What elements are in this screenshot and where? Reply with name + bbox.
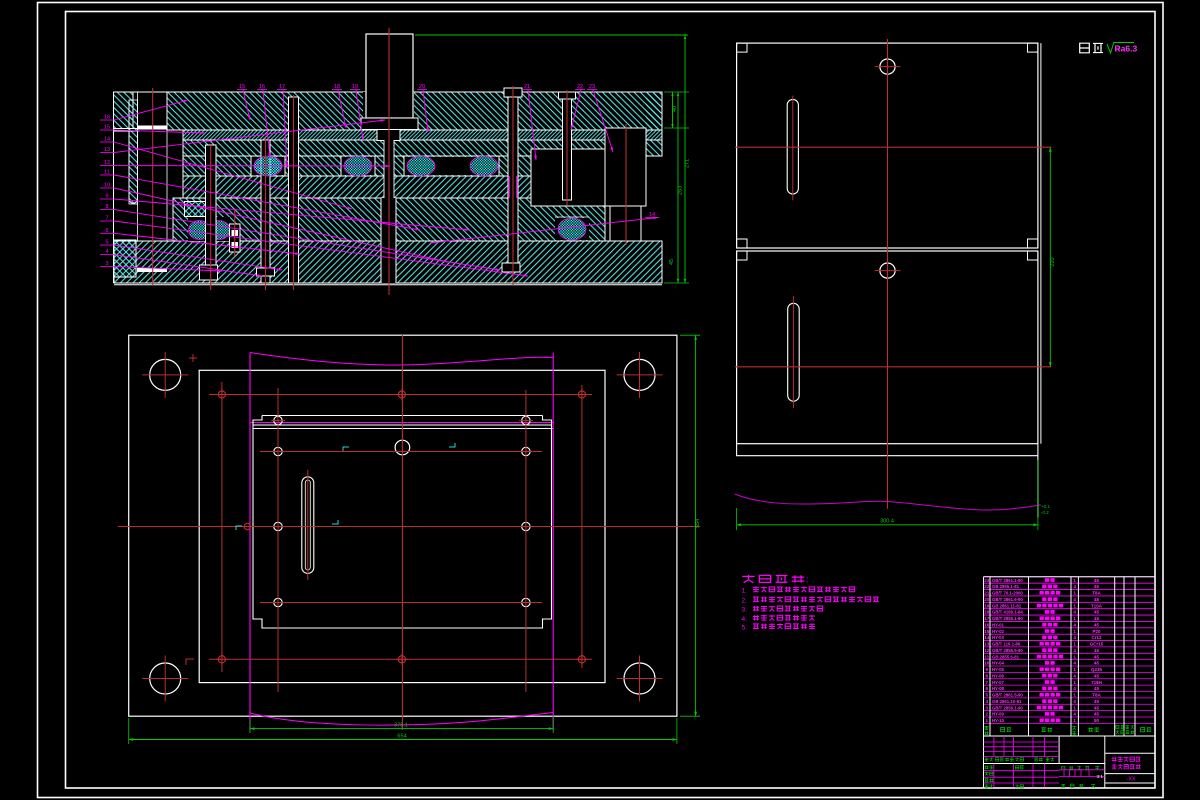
svg-text:21: 21 xyxy=(984,591,990,596)
svg-text:3:1: 3:1 xyxy=(1097,774,1104,779)
svg-text:45: 45 xyxy=(1094,686,1100,691)
svg-text:45: 45 xyxy=(1094,584,1100,589)
svg-text:4: 4 xyxy=(1073,622,1076,627)
svg-text:Cr12: Cr12 xyxy=(1092,635,1103,640)
svg-text:1: 1 xyxy=(1073,629,1076,634)
svg-text:T8A: T8A xyxy=(1092,591,1101,596)
svg-text:HY-04: HY-04 xyxy=(992,661,1005,666)
svg-text:220: 220 xyxy=(1050,257,1056,266)
svg-text:4: 4 xyxy=(1073,635,1076,640)
svg-text:45: 45 xyxy=(1094,699,1100,704)
svg-text:GB/T 4169.1-84: GB/T 4169.1-84 xyxy=(992,610,1023,615)
svg-text:HY-01: HY-01 xyxy=(992,622,1005,627)
svg-text:-0.2: -0.2 xyxy=(1041,510,1049,515)
svg-text:378.1: 378.1 xyxy=(394,723,408,729)
svg-text:45: 45 xyxy=(1094,622,1100,627)
svg-text:45: 45 xyxy=(1094,610,1100,615)
svg-text:654: 654 xyxy=(397,734,406,740)
svg-text:718H: 718H xyxy=(1091,680,1102,685)
svg-text:1: 1 xyxy=(1073,578,1076,583)
svg-text:40: 40 xyxy=(672,106,678,112)
svg-text:HY-05: HY-05 xyxy=(992,667,1005,672)
svg-text:HY-10: HY-10 xyxy=(992,718,1005,723)
svg-text:45: 45 xyxy=(1094,654,1100,659)
svg-text:19: 19 xyxy=(984,603,990,608)
svg-text:7: 7 xyxy=(985,680,988,685)
svg-text:4: 4 xyxy=(1073,648,1076,653)
svg-text:5.: 5. xyxy=(742,624,748,631)
svg-text:17: 17 xyxy=(984,616,990,621)
svg-text:45: 45 xyxy=(1094,597,1100,602)
svg-text:4: 4 xyxy=(1073,699,1076,704)
svg-text:GB/T 2855.1-90: GB/T 2855.1-90 xyxy=(992,616,1023,621)
svg-text:GCr15: GCr15 xyxy=(1090,642,1104,647)
svg-text:4: 4 xyxy=(1073,597,1076,602)
svg-text:-XX: -XX xyxy=(1126,776,1136,782)
svg-text:1: 1 xyxy=(1073,680,1076,685)
svg-text:271: 271 xyxy=(685,159,691,168)
svg-text:HY-02: HY-02 xyxy=(992,629,1005,634)
svg-text:T8A: T8A xyxy=(1092,693,1101,698)
svg-text:6: 6 xyxy=(985,686,988,691)
svg-text:10: 10 xyxy=(984,661,990,666)
svg-text:253: 253 xyxy=(678,186,684,195)
svg-text:HY-09: HY-09 xyxy=(992,712,1005,717)
svg-text:Q235: Q235 xyxy=(1091,667,1103,672)
svg-text:45: 45 xyxy=(1094,648,1100,653)
svg-text:HY-08: HY-08 xyxy=(992,686,1005,691)
svg-text:Ra6.3: Ra6.3 xyxy=(1115,44,1138,54)
svg-text:554: 554 xyxy=(695,519,701,528)
svg-text:4: 4 xyxy=(1073,584,1076,589)
svg-text:GB/T 2856.1-90: GB/T 2856.1-90 xyxy=(992,705,1023,710)
svg-text:300.4: 300.4 xyxy=(880,519,894,525)
svg-text:GB 2855.6-81: GB 2855.6-81 xyxy=(992,654,1020,659)
svg-text:GB/T 70.1-2000: GB/T 70.1-2000 xyxy=(992,591,1023,596)
svg-text:GB 2861.11-81: GB 2861.11-81 xyxy=(992,603,1022,608)
svg-text:4: 4 xyxy=(985,699,988,704)
svg-text:3: 3 xyxy=(985,705,988,710)
svg-text:HY-03: HY-03 xyxy=(992,635,1005,640)
svg-text:15: 15 xyxy=(984,629,990,634)
svg-text:4: 4 xyxy=(1073,686,1076,691)
svg-text:T10A: T10A xyxy=(1091,603,1103,608)
svg-text:50: 50 xyxy=(1094,718,1100,723)
svg-text:5: 5 xyxy=(985,693,988,698)
svg-text:GB/T 119.1-86: GB/T 119.1-86 xyxy=(992,642,1021,647)
svg-text:1.: 1. xyxy=(742,588,748,595)
svg-text:45: 45 xyxy=(1094,712,1100,717)
svg-text:1: 1 xyxy=(1073,667,1076,672)
svg-text:20: 20 xyxy=(984,597,990,602)
svg-text:45: 45 xyxy=(1094,705,1100,710)
svg-text:23: 23 xyxy=(984,578,990,583)
svg-text:11: 11 xyxy=(984,654,989,659)
svg-text:45: 45 xyxy=(1094,661,1100,666)
svg-text:18: 18 xyxy=(984,610,990,615)
svg-text:2: 2 xyxy=(985,712,988,717)
svg-text:45: 45 xyxy=(1094,673,1100,678)
svg-text:13: 13 xyxy=(984,642,990,647)
svg-text:2.: 2. xyxy=(742,598,748,605)
svg-text:GB 2865.1-81: GB 2865.1-81 xyxy=(992,584,1020,589)
svg-text:1: 1 xyxy=(1073,616,1076,621)
svg-text:P20: P20 xyxy=(1093,629,1102,634)
svg-text:14: 14 xyxy=(984,635,990,640)
svg-text:4.: 4. xyxy=(742,616,748,623)
svg-text:9: 9 xyxy=(985,667,988,672)
svg-text:4: 4 xyxy=(1073,610,1076,615)
svg-text:45: 45 xyxy=(1094,616,1100,621)
svg-text:12: 12 xyxy=(984,648,990,653)
svg-text:GB 2861.10-81: GB 2861.10-81 xyxy=(992,699,1022,704)
svg-text:8: 8 xyxy=(985,673,988,678)
svg-text:1: 1 xyxy=(1073,705,1076,710)
svg-text:GB/T 2861.5-90: GB/T 2861.5-90 xyxy=(992,693,1023,698)
svg-text:1: 1 xyxy=(1073,718,1076,723)
svg-text:1: 1 xyxy=(1073,654,1076,659)
svg-text:22: 22 xyxy=(984,584,990,589)
svg-text:3.: 3. xyxy=(742,607,748,614)
svg-text:45: 45 xyxy=(1094,578,1100,583)
svg-text:+0.1: +0.1 xyxy=(1041,504,1050,509)
svg-text:4: 4 xyxy=(1073,661,1076,666)
svg-text:1: 1 xyxy=(1073,642,1076,647)
svg-text:4: 4 xyxy=(1073,712,1076,717)
svg-text:GB/T 2855.5-90: GB/T 2855.5-90 xyxy=(992,648,1023,653)
svg-text:1: 1 xyxy=(1073,591,1076,596)
svg-text:GB/T 2861.6-90: GB/T 2861.6-90 xyxy=(992,597,1023,602)
svg-text:1: 1 xyxy=(985,718,988,723)
svg-text::: : xyxy=(806,575,809,585)
svg-text:4: 4 xyxy=(1073,673,1076,678)
svg-text:HY-07: HY-07 xyxy=(992,680,1005,685)
svg-text:GB/T 2861.1-90: GB/T 2861.1-90 xyxy=(992,578,1023,583)
svg-text:HY-06: HY-06 xyxy=(992,673,1005,678)
svg-text:1: 1 xyxy=(1073,693,1076,698)
svg-text:45: 45 xyxy=(669,259,675,265)
svg-text:1: 1 xyxy=(1073,603,1076,608)
svg-text:16: 16 xyxy=(984,622,990,627)
